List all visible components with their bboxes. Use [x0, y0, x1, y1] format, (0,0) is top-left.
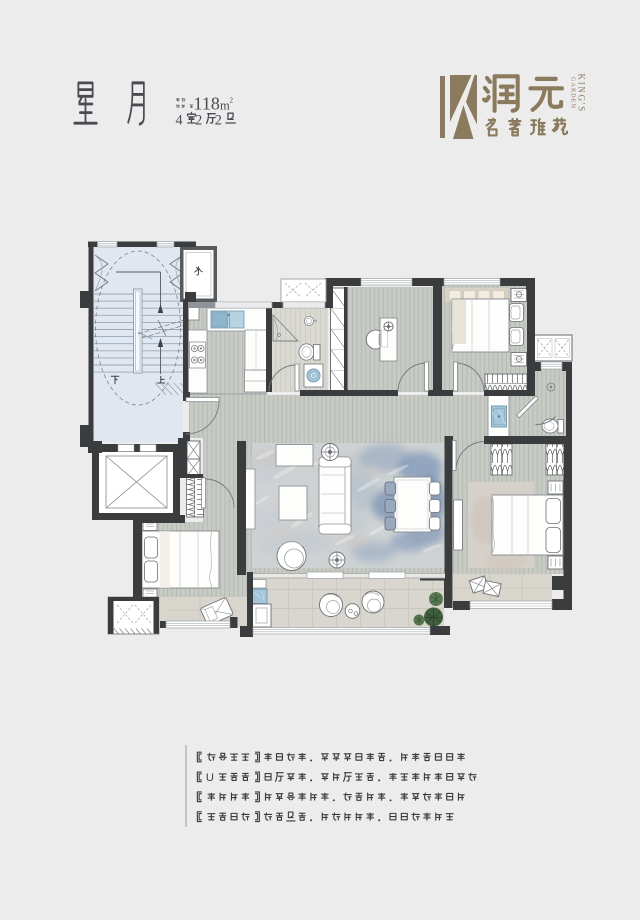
svg-text:2: 2 [195, 113, 202, 129]
svg-text:KING'S: KING'S [577, 74, 587, 113]
svg-text:GARDEN: GARDEN [570, 77, 576, 109]
svg-text:2: 2 [215, 113, 222, 129]
svg-text:m: m [220, 99, 230, 113]
svg-text:4: 4 [176, 113, 183, 129]
svg-text:2: 2 [230, 97, 234, 105]
svg-text:118: 118 [194, 94, 220, 114]
svg-text:U: U [206, 772, 214, 784]
